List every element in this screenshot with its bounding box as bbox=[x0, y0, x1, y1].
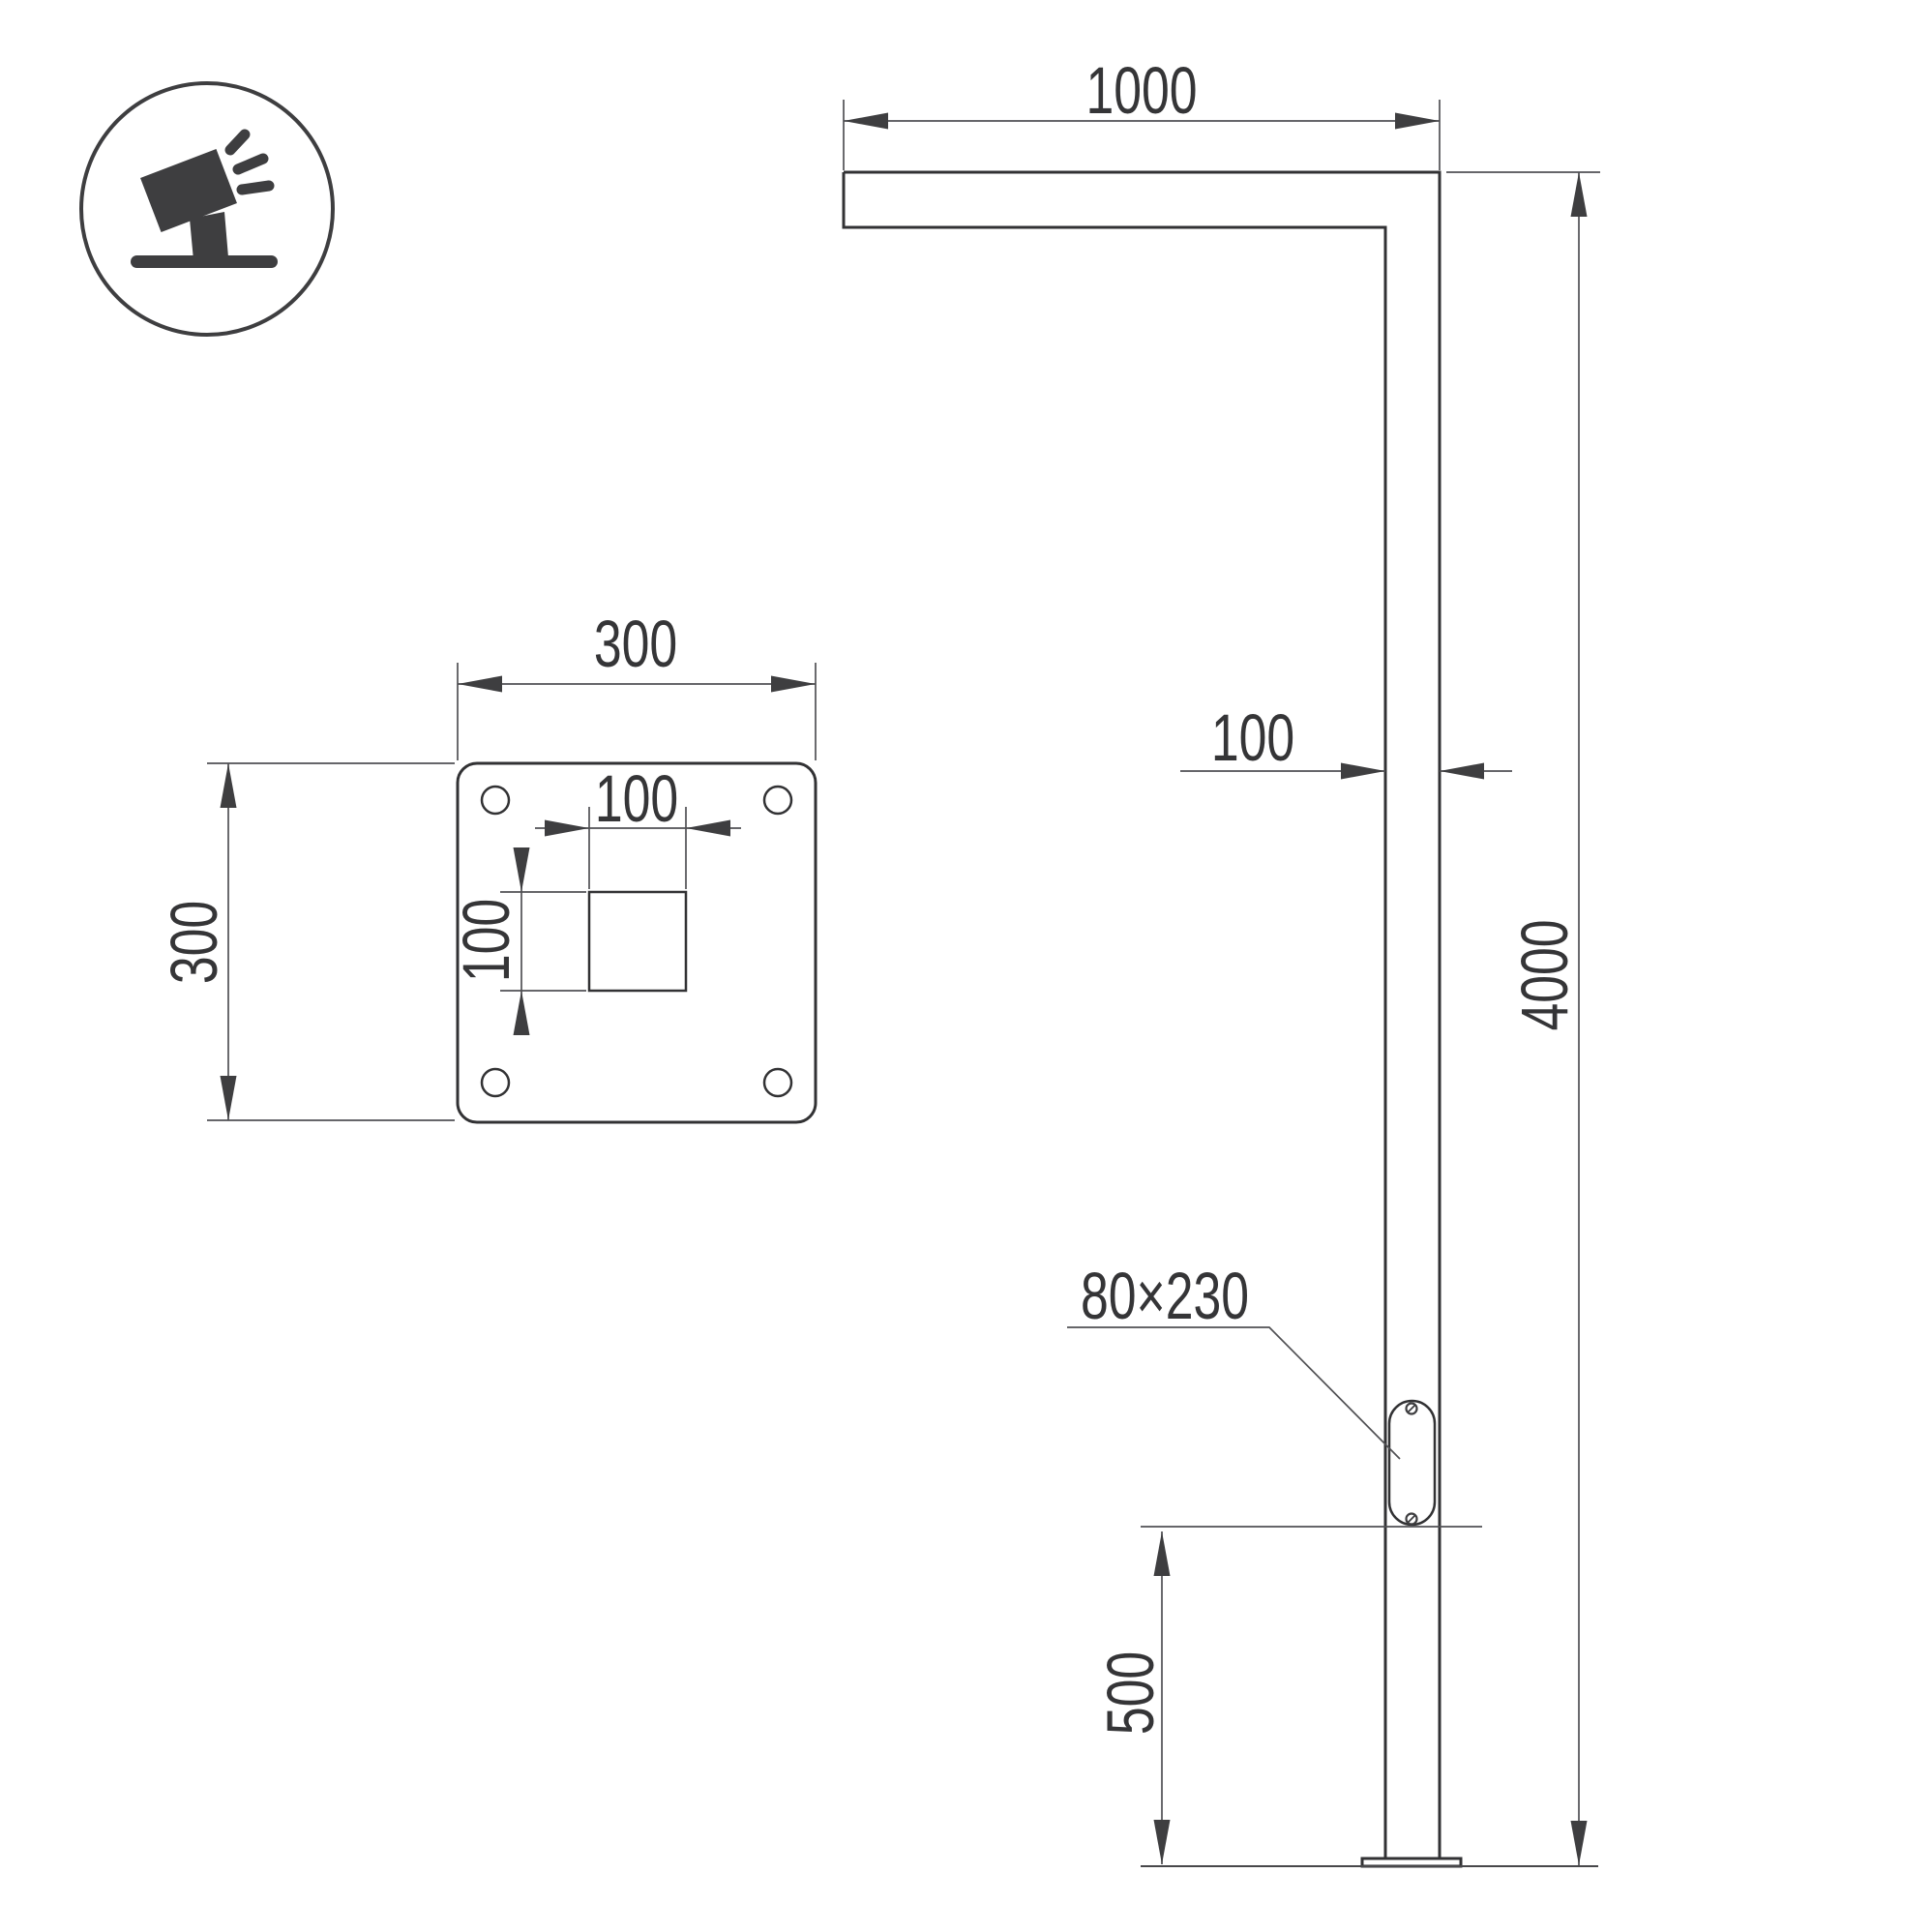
bolt-hole-top-left bbox=[482, 787, 509, 814]
dim-arrow bbox=[514, 847, 530, 892]
leader-hatch-size: 80×230 bbox=[1067, 1259, 1400, 1459]
bolt-hole-top-right bbox=[764, 787, 791, 814]
dim-arrow bbox=[1154, 1531, 1171, 1576]
pole-outline bbox=[844, 172, 1440, 1858]
dim-label-plate-width: 300 bbox=[594, 607, 677, 681]
dim-label-cutout-height: 100 bbox=[449, 899, 523, 982]
dim-arrow bbox=[514, 991, 530, 1035]
bolt-hole-bottom-left bbox=[482, 1069, 509, 1096]
light-ray-middle bbox=[238, 159, 263, 169]
dim-cutout-width: 100 bbox=[535, 761, 741, 889]
dim-label-pole-height: 4000 bbox=[1507, 919, 1582, 1030]
dim-arrow bbox=[1571, 1821, 1588, 1865]
floodlight-ground-bar bbox=[131, 255, 278, 268]
pole-elevation: 1000 100 4000 500 80× bbox=[844, 53, 1600, 1866]
dim-arrow bbox=[221, 763, 237, 808]
dim-arrow bbox=[771, 676, 816, 693]
dim-arrow bbox=[1341, 763, 1385, 780]
base-plate-detail: 300 300 100 100 bbox=[157, 607, 816, 1122]
bolt-hole-bottom-right bbox=[764, 1069, 791, 1096]
hatch-screw-top-slot bbox=[1408, 1405, 1415, 1412]
center-square-cutout bbox=[589, 892, 686, 991]
floodlight-icon bbox=[131, 134, 278, 268]
base-flange bbox=[1362, 1858, 1461, 1866]
dim-arrow bbox=[1154, 1820, 1171, 1864]
dim-arm-length: 1000 bbox=[844, 53, 1440, 170]
dim-label-arm-length: 1000 bbox=[1085, 53, 1197, 128]
dim-arrow bbox=[545, 820, 589, 837]
dim-arrow bbox=[1395, 113, 1440, 130]
dim-cutout-height: 100 bbox=[449, 847, 586, 1035]
dim-pole-width: 100 bbox=[1180, 700, 1512, 780]
hatch-cover bbox=[1389, 1401, 1435, 1525]
dim-arrow bbox=[686, 820, 730, 837]
dim-label-pole-width: 100 bbox=[1211, 700, 1294, 775]
hatch-screw-bottom-slot bbox=[1408, 1515, 1415, 1523]
dim-hatch-height: 500 bbox=[1093, 1527, 1482, 1864]
light-ray-bottom bbox=[242, 186, 269, 190]
dim-label-plate-height: 300 bbox=[157, 901, 231, 984]
technical-drawing-canvas: 300 300 100 100 bbox=[0, 0, 1932, 1932]
dim-arrow bbox=[221, 1076, 237, 1120]
product-type-icon bbox=[81, 83, 333, 335]
dim-arrow bbox=[458, 676, 502, 693]
leader-line bbox=[1067, 1327, 1400, 1459]
dim-label-hatch-size: 80×230 bbox=[1081, 1259, 1249, 1333]
access-hatch bbox=[1389, 1401, 1435, 1525]
dim-label-hatch-height: 500 bbox=[1093, 1651, 1168, 1735]
light-rays bbox=[230, 134, 269, 190]
dim-plate-height: 300 bbox=[157, 763, 455, 1120]
dim-label-cutout-width: 100 bbox=[595, 761, 678, 836]
dim-pole-height: 4000 bbox=[1446, 172, 1600, 1865]
dim-arrow bbox=[1440, 763, 1484, 780]
dim-plate-width: 300 bbox=[458, 607, 816, 760]
dim-arrow bbox=[844, 113, 888, 130]
light-ray-top bbox=[230, 134, 245, 150]
dim-arrow bbox=[1571, 172, 1588, 217]
floodlight-pedestal bbox=[190, 212, 228, 260]
